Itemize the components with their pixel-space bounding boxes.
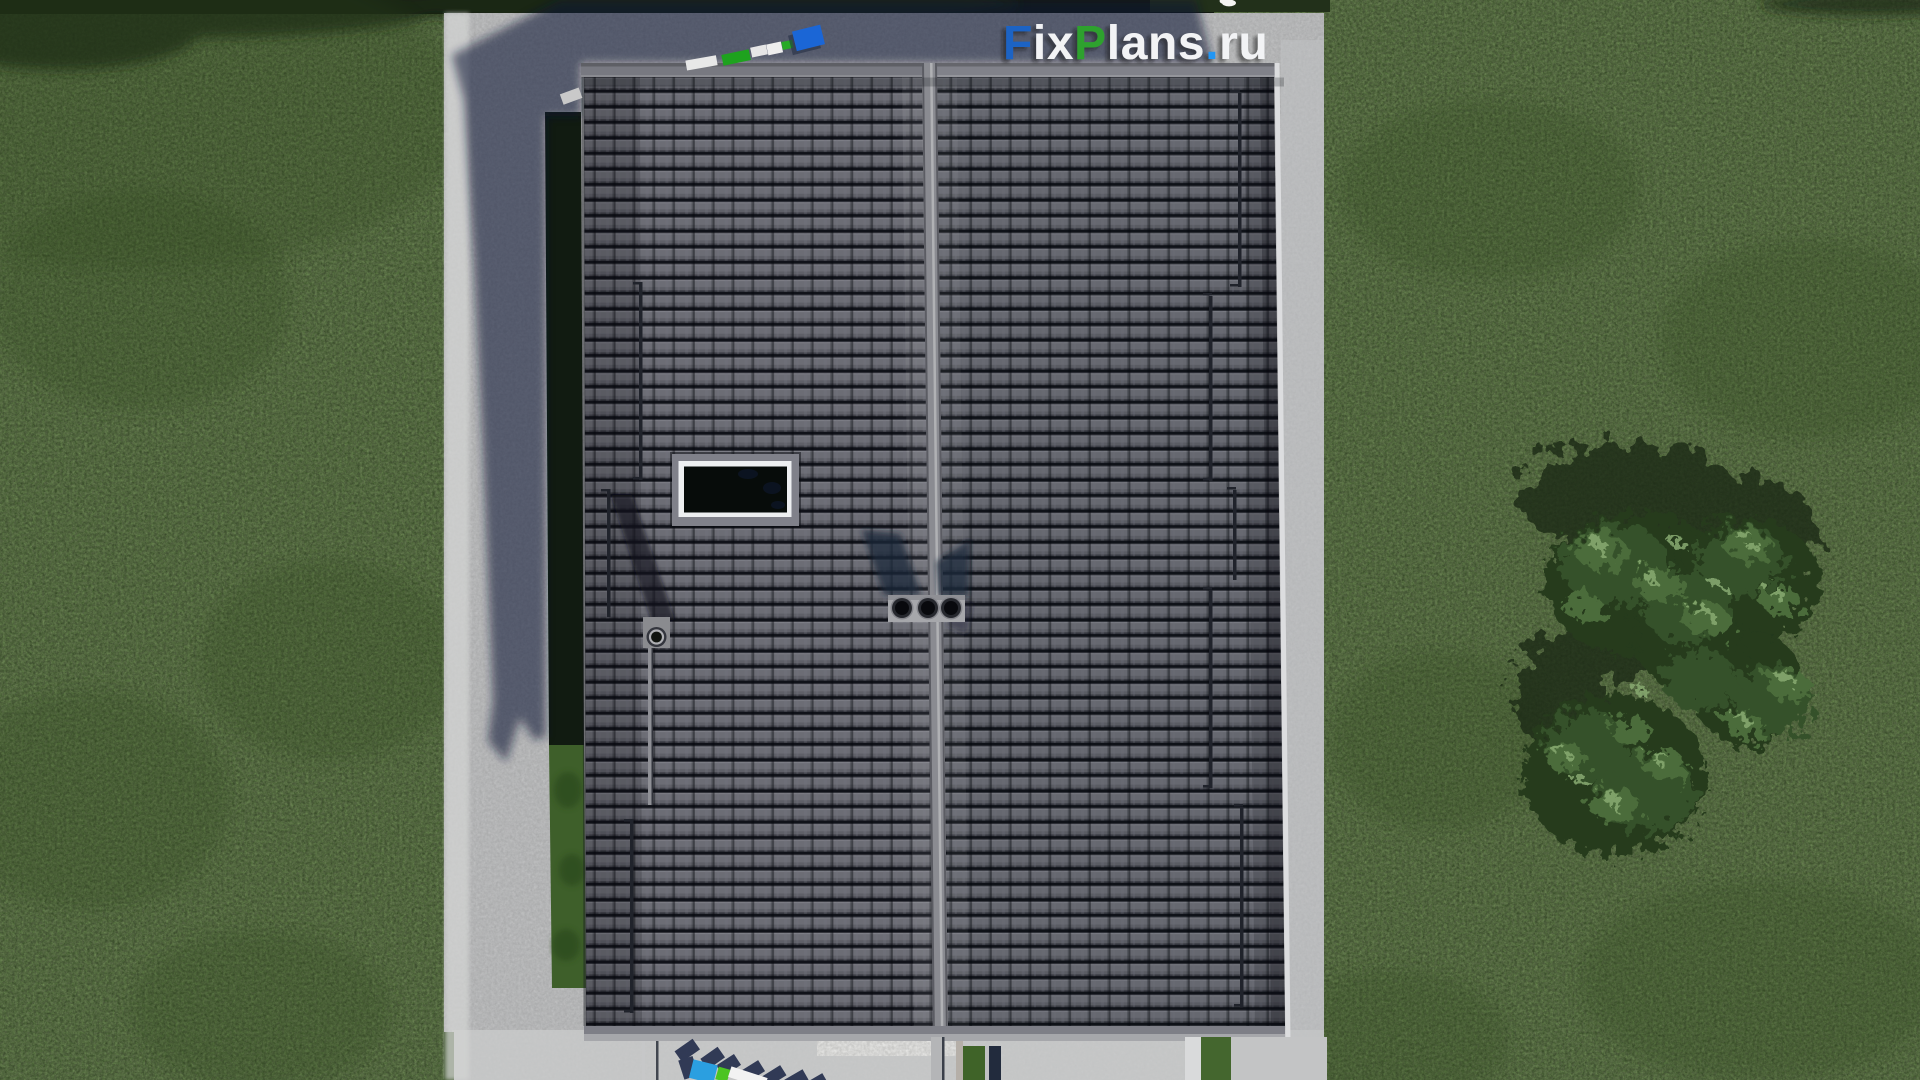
- svg-text:FixPlans.ru: FixPlans.ru: [1003, 17, 1268, 70]
